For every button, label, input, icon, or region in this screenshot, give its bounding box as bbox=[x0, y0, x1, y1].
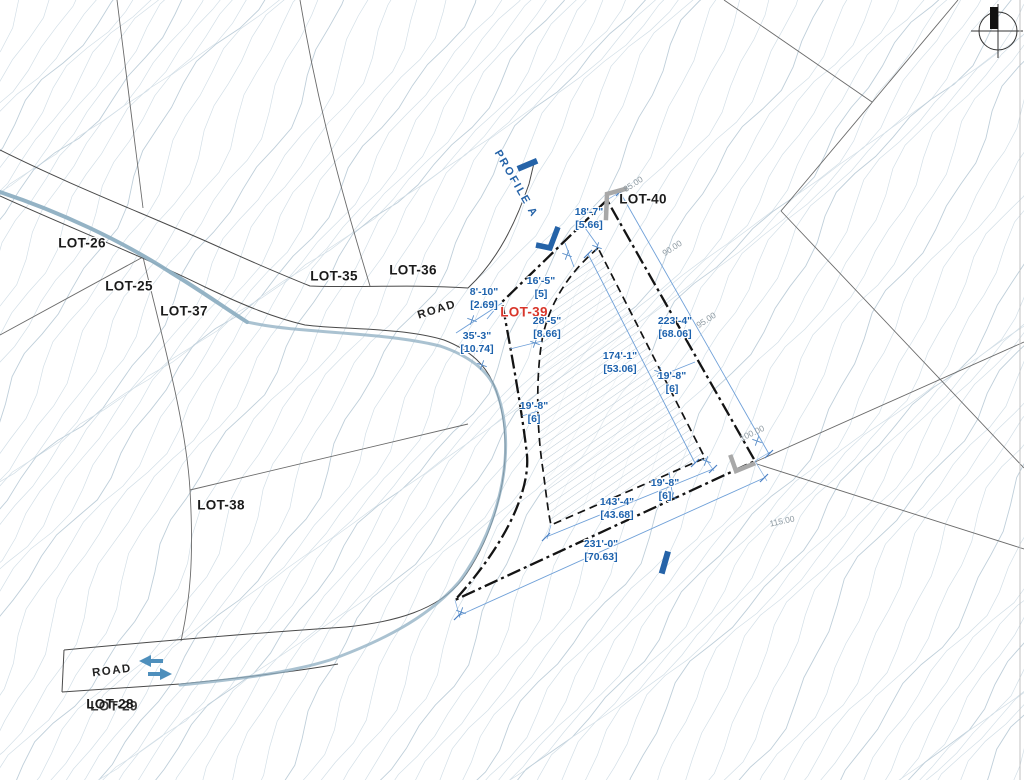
road-edges bbox=[0, 150, 534, 692]
profile-end-bar-icon bbox=[659, 551, 671, 575]
dim-meters: [2.69] bbox=[470, 299, 499, 312]
dim-meters: [5] bbox=[527, 288, 556, 301]
dim-feet: 231'-0" bbox=[584, 538, 618, 551]
profile-cut-bar-icon bbox=[517, 158, 539, 172]
dim-meters: [8.66] bbox=[533, 328, 562, 341]
dimension-19-8-bottom: 19'-8"[6] bbox=[651, 477, 680, 503]
road-direction-arrows bbox=[139, 655, 172, 680]
dim-feet: 19'-8" bbox=[658, 370, 687, 383]
dim-feet: 19'-8" bbox=[651, 477, 680, 490]
dimension-16-5: 16'-5"[5] bbox=[527, 275, 556, 301]
lot-label-35: LOT-35 bbox=[310, 269, 358, 284]
dimension-231-0: 231'-0"[70.63] bbox=[584, 538, 618, 564]
dim-feet: 35'-3" bbox=[460, 330, 493, 343]
dimension-19-8-left: 19'-8"[6] bbox=[520, 400, 549, 426]
dimension-19-8-right: 19'-8"[6] bbox=[658, 370, 687, 396]
dim-feet: 223'-4" bbox=[658, 315, 692, 328]
lot-label-25: LOT-25 bbox=[105, 279, 153, 294]
dim-meters: [5.66] bbox=[575, 219, 604, 232]
dim-feet: 19'-8" bbox=[520, 400, 549, 413]
dim-feet: 8'-10" bbox=[470, 286, 499, 299]
dimension-143-4: 143'-4"[43.68] bbox=[600, 496, 634, 522]
north-arrow-icon bbox=[971, 4, 1023, 58]
dim-meters: [53.06] bbox=[603, 363, 637, 376]
dimension-35-3: 35'-3"[10.74] bbox=[460, 330, 493, 356]
dim-meters: [70.63] bbox=[584, 551, 618, 564]
dim-meters: [10.74] bbox=[460, 343, 493, 356]
dimension-28-5: 28'-5"[8.66] bbox=[533, 315, 562, 341]
lot-label-37: LOT-37 bbox=[160, 304, 208, 319]
dim-feet: 143'-4" bbox=[600, 496, 634, 509]
dim-feet: 28'-5" bbox=[533, 315, 562, 328]
dim-meters: [43.68] bbox=[600, 509, 634, 522]
dimension-174-1: 174'-1"[53.06] bbox=[603, 350, 637, 376]
lot-label-29: LOT-29 bbox=[90, 699, 138, 714]
dim-feet: 174'-1" bbox=[603, 350, 637, 363]
lot-label-36: LOT-36 bbox=[389, 263, 437, 278]
lot-label-26: LOT-26 bbox=[58, 236, 106, 251]
dimension-18-7: 18'-7"[5.66] bbox=[575, 206, 604, 232]
dim-meters: [68.06] bbox=[658, 328, 692, 341]
dim-meters: [6] bbox=[658, 383, 687, 396]
dimension-8-10: 8'-10"[2.69] bbox=[470, 286, 499, 312]
site-plan: LOT-26 LOT-25 LOT-37 LOT-35 LOT-36 LOT-3… bbox=[0, 0, 1024, 780]
site-plan-drawing bbox=[0, 0, 1024, 780]
lot-label-38: LOT-38 bbox=[197, 498, 245, 513]
dim-feet: 18'-7" bbox=[575, 206, 604, 219]
dim-meters: [6] bbox=[520, 413, 549, 426]
arrow-right-icon bbox=[148, 668, 172, 680]
dim-meters: [6] bbox=[651, 490, 680, 503]
dim-feet: 16'-5" bbox=[527, 275, 556, 288]
dimension-223-4: 223'-4"[68.06] bbox=[658, 315, 692, 341]
